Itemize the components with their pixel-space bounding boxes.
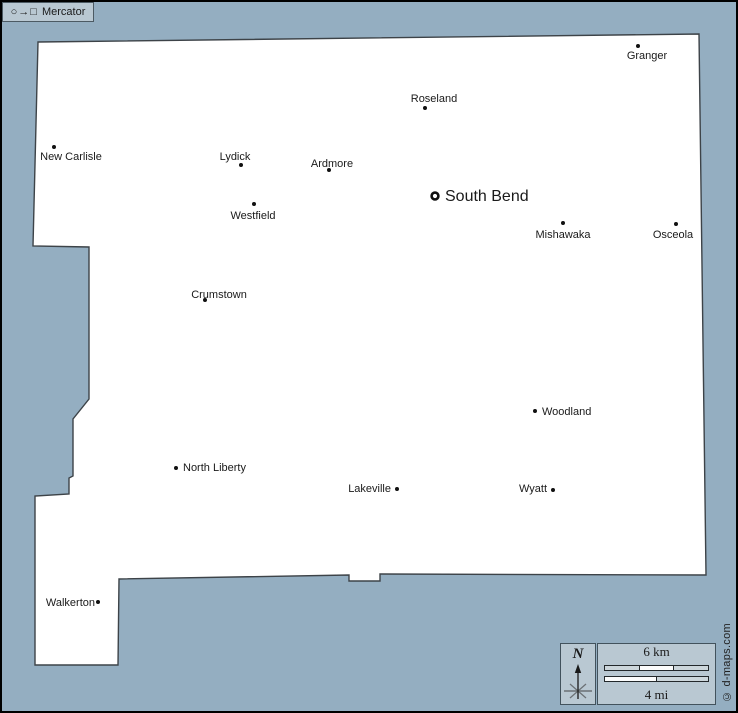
city-dot <box>561 221 565 225</box>
city-dot <box>174 466 178 470</box>
scale-km-segment <box>673 666 708 670</box>
scale-bar-box: 6 km 4 mi <box>597 643 716 705</box>
city-label: Woodland <box>542 406 591 418</box>
county-map: GrangerRoselandNew CarlisleLydickArdmore… <box>2 2 736 711</box>
city-dot <box>423 106 427 110</box>
compass-box: N <box>560 643 596 705</box>
city-dot <box>636 44 640 48</box>
city-label: Roseland <box>411 93 457 105</box>
city-label: Crumstown <box>191 289 247 301</box>
city-label: South Bend <box>445 188 529 205</box>
scale-mi-segment <box>656 677 708 681</box>
city-label: Lakeville <box>348 483 391 495</box>
city-label: Granger <box>627 50 668 62</box>
city-label: Wyatt <box>519 483 547 495</box>
county-shape <box>33 34 706 665</box>
compass-north-label: N <box>573 646 584 662</box>
city-label: Mishawaka <box>535 229 591 241</box>
scale-mi-label: 4 mi <box>645 688 668 702</box>
city-dot <box>533 409 537 413</box>
compass-rose-icon <box>561 662 595 704</box>
city-label: Westfield <box>230 210 275 222</box>
scale-bar-mi <box>604 676 709 682</box>
credit-text: © d-maps.com <box>721 623 733 702</box>
city-label: North Liberty <box>183 462 246 474</box>
scale-km-segment <box>639 666 674 670</box>
city-dot <box>52 145 56 149</box>
city-ring-marker <box>432 193 439 200</box>
city-label: Ardmore <box>311 158 353 170</box>
scale-km-segment <box>605 666 639 670</box>
scale-bar-km <box>604 665 709 671</box>
city-label: New Carlisle <box>40 151 102 163</box>
city-dot <box>551 488 555 492</box>
city-label: Walkerton <box>46 597 95 609</box>
map-canvas: GrangerRoselandNew CarlisleLydickArdmore… <box>0 0 738 713</box>
city-label: Lydick <box>220 151 251 163</box>
city-dot <box>395 487 399 491</box>
city-dot <box>239 163 243 167</box>
city-dot <box>252 202 256 206</box>
scale-mi-segment <box>605 677 656 681</box>
city-dot <box>96 600 100 604</box>
city-label: Osceola <box>653 229 694 241</box>
scale-km-label: 6 km <box>643 645 669 659</box>
city-dot <box>674 222 678 226</box>
